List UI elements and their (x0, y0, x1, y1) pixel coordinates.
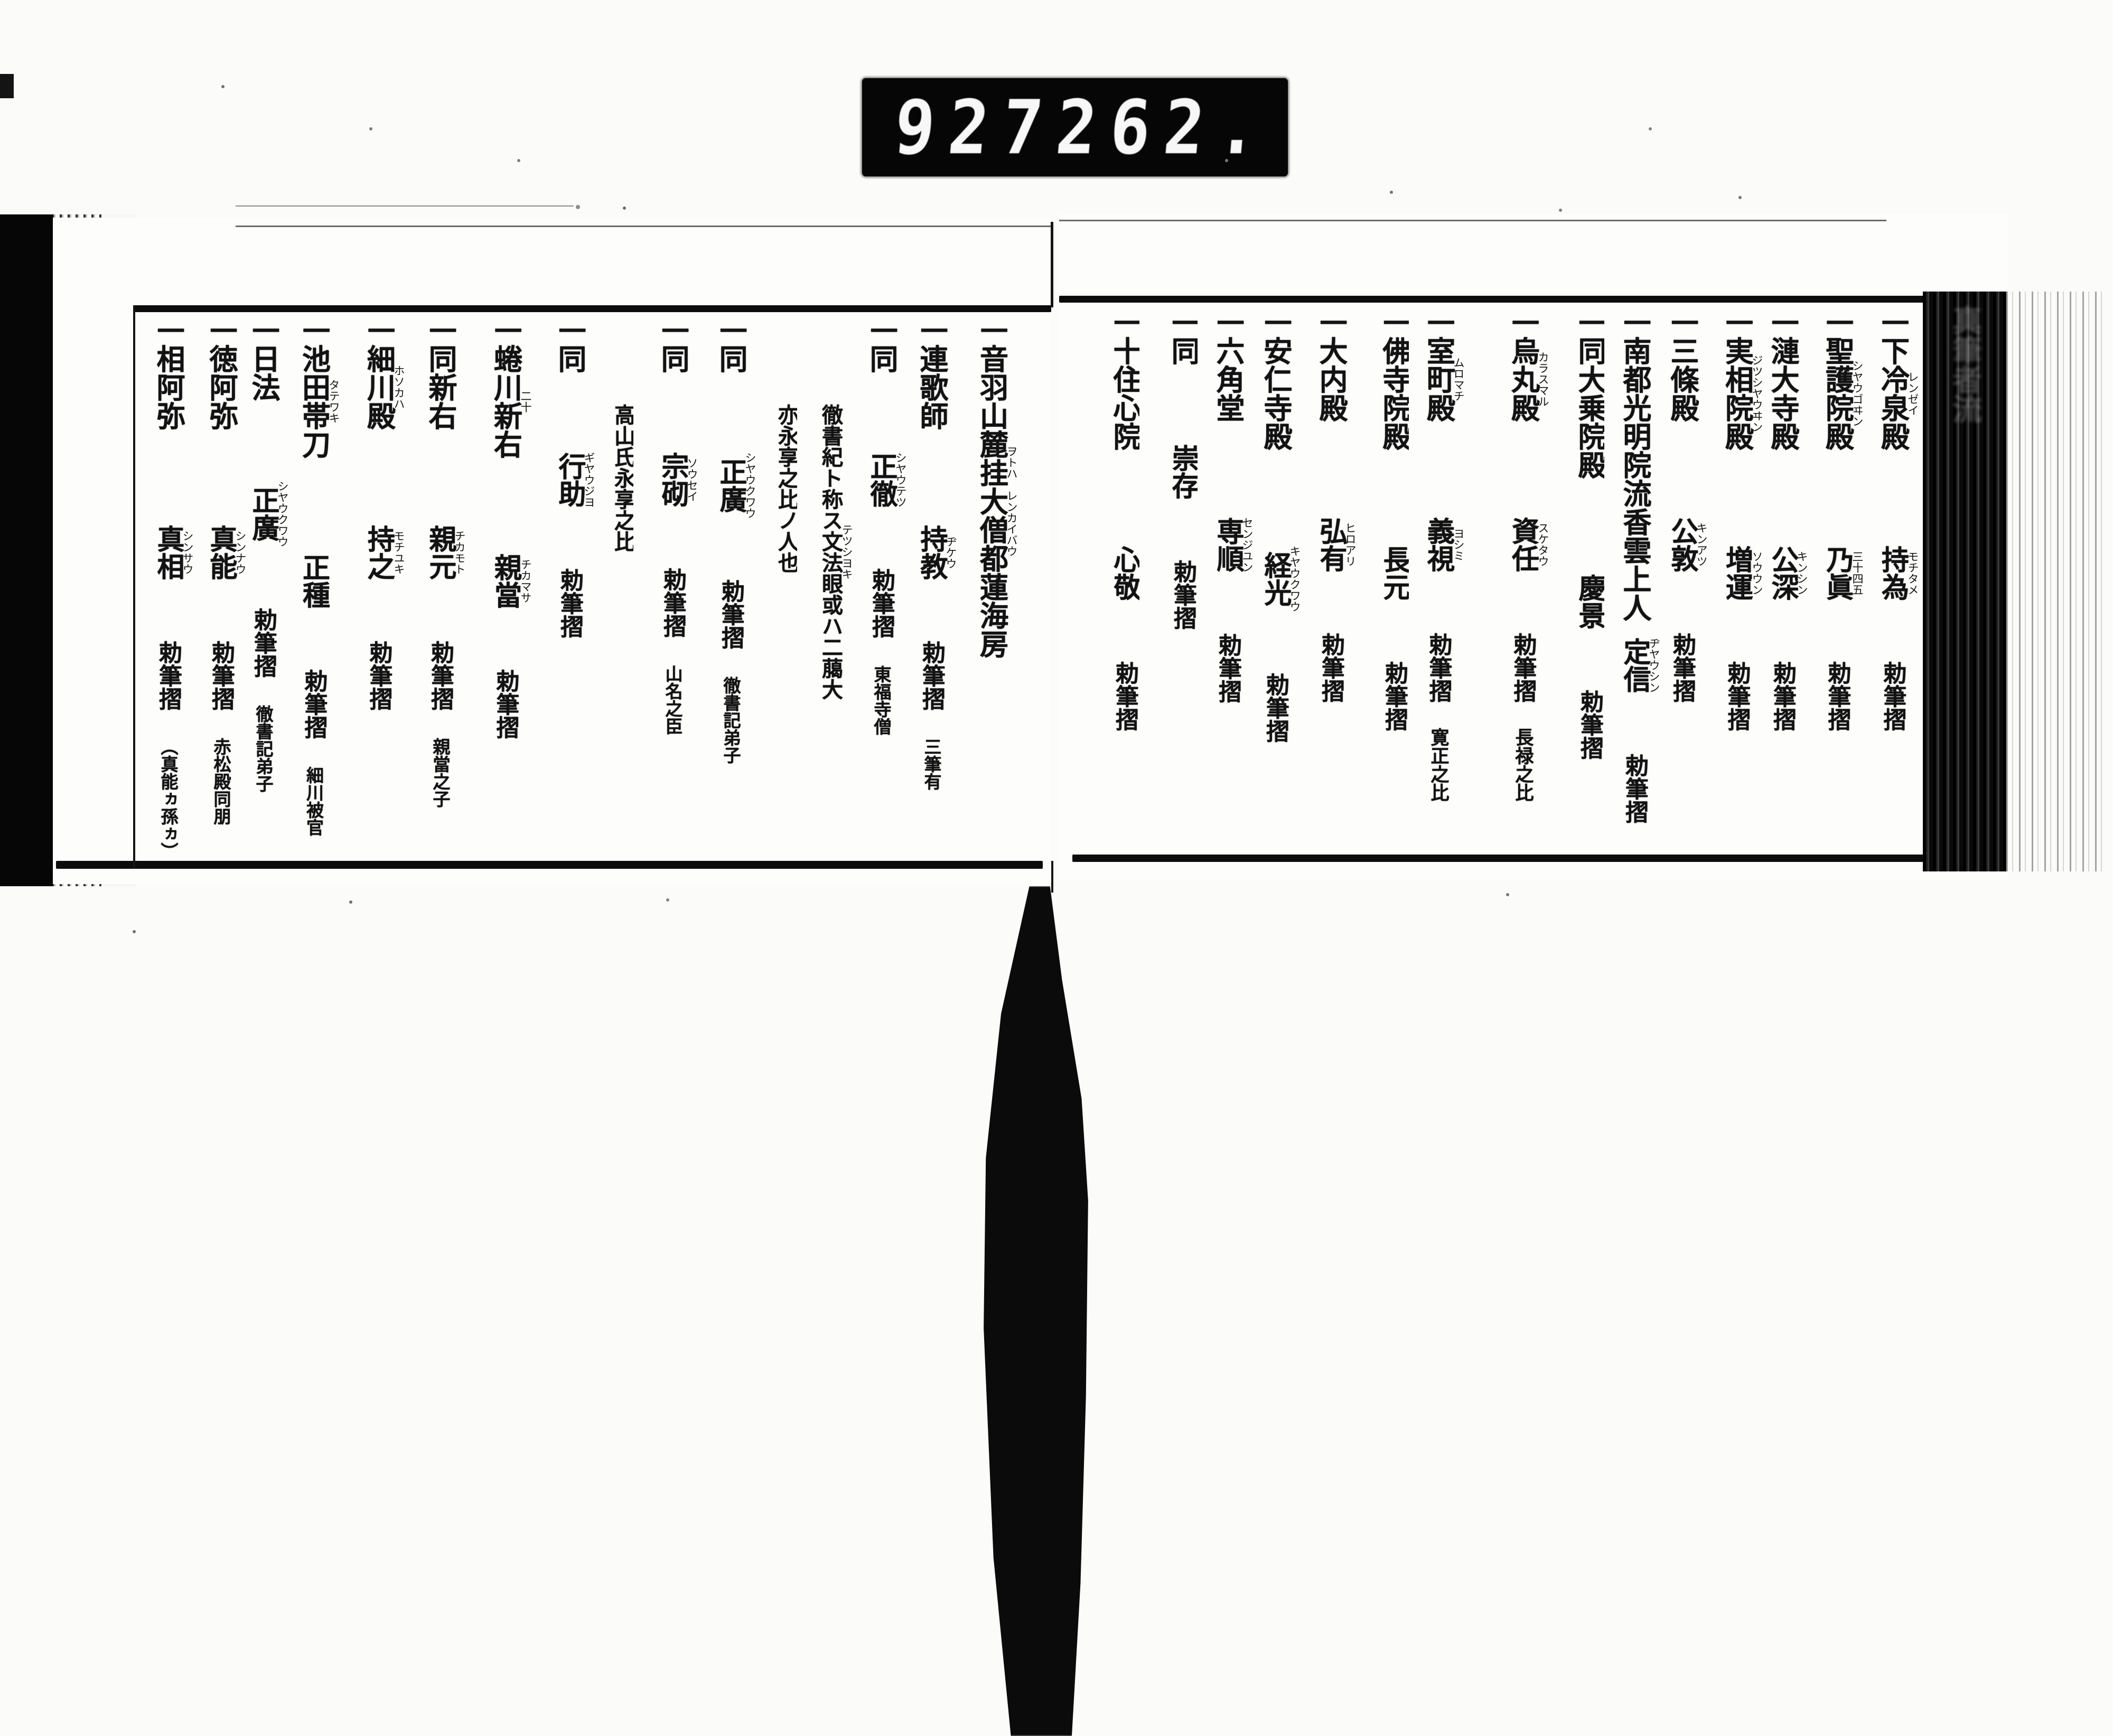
item-marker: 一 (1721, 309, 1753, 336)
item-marker: 一 (1766, 309, 1798, 336)
chokuhitsu-label: 勅筆摺 (1425, 633, 1452, 702)
chokuhitsu-label: 勅筆摺 (1510, 633, 1537, 702)
entry-title: 蜷川新右二十 (489, 344, 522, 458)
text-column: 一連歌師持教ヂケウ勅筆摺三筆有 (908, 317, 957, 860)
entry-note: 細川被官 (304, 766, 324, 836)
item-marker: 一 (1212, 309, 1244, 336)
entry-title: 漣大寺殿 (1766, 336, 1799, 451)
era-note: 寛正之比 (1428, 728, 1449, 802)
chokuhitsu-label: 勅筆摺 (1724, 661, 1751, 731)
text-column: 一池田帯刀タテワキ正種勅筆摺細川被官 (291, 317, 340, 860)
item-marker: 一 (1167, 309, 1198, 336)
entry-title: 大内殿 (1314, 336, 1348, 422)
entry-name: 定信ヂヤウシン (1619, 637, 1650, 693)
chokuhitsu-label: 勅筆摺 (1262, 673, 1289, 743)
entry-name: 正種 (298, 553, 330, 608)
counter-left-digits: 927 (891, 84, 1060, 171)
gutter-shadow: 真筆者流 (1923, 292, 2006, 871)
item-marker: 一 (1507, 309, 1539, 336)
text-column: 一蜷川新右二十親當チカマサ勅筆摺 (483, 317, 531, 860)
item-marker: 一 (1619, 309, 1650, 336)
annotation-text: 亦永享之比ノ人也 (774, 404, 797, 573)
left-page-top-edge (236, 226, 1051, 227)
film-counter: 927 262. (862, 78, 1288, 176)
entry-title: 聖護院殿シヤウゴヰン (1821, 336, 1854, 451)
text-column: 一聖護院殿シヤウゴヰン乃眞三十四五勅筆摺 (1815, 309, 1863, 853)
text-column: 一同正廣シヤウクワウ勅筆摺徹書記弟子 (707, 317, 756, 860)
chokuhitsu-label: 勅筆摺 (492, 669, 519, 739)
text-column: 一大内殿弘有ヒロアリ勅筆摺 (1307, 309, 1356, 853)
entry-name: 資任スケタウ (1507, 517, 1539, 572)
entry-name: 弘有ヒロアリ (1315, 517, 1347, 572)
entry-name: 乃眞三十四五 (1821, 546, 1853, 600)
entry-name: 公敦キンアツ (1666, 517, 1698, 572)
entry-title: 同 (865, 344, 898, 373)
entry-name: 長元 (1378, 546, 1409, 600)
entry-name: 専順センジユン (1212, 517, 1244, 573)
item-marker: 一 (1259, 309, 1291, 336)
entry-title: 同 (714, 344, 747, 373)
entry-name: 真相シンサウ (152, 525, 184, 580)
annotation-column: 高山氏永享之比 (596, 317, 633, 860)
right-frame-top (1059, 296, 1929, 303)
entry-note: 親當之子 (430, 738, 451, 808)
item-marker: 一 (490, 317, 521, 344)
entry-name: 心敬 (1109, 546, 1139, 600)
item-marker: 一 (1574, 309, 1604, 336)
entry-title: 連歌師 (915, 344, 948, 430)
item-marker: 一 (915, 317, 947, 344)
right-page-text: 一同勾當内侍一下冷泉殿レンゼイ持為モチタメ勅筆摺一聖護院殿シヤウゴヰン乃眞三十四… (1059, 309, 1928, 853)
entry-note: 東福寺僧 (871, 665, 892, 735)
entry-note: 山名之臣 (662, 665, 683, 735)
entry-title: 下冷泉殿レンゼイ (1876, 336, 1910, 451)
film-edge-mark (0, 74, 14, 98)
entry-title: 佛寺院殿 (1378, 336, 1409, 451)
chokuhitsu-label: 勅筆摺 (1214, 633, 1241, 703)
text-column: 一同宗砌ソウセイ勅筆摺山名之臣 (649, 317, 698, 860)
chokuhitsu-label: 勅筆摺 (1621, 754, 1648, 823)
text-column: 一安仁寺殿経光キヤウクワウ勅筆摺 (1252, 309, 1301, 853)
fold-shadow (981, 886, 1090, 1736)
entry-name: 行助ギヤウジヨ (554, 452, 585, 508)
entry-title: 同 (553, 344, 586, 373)
entry-title: 細川殿ホソカハ (362, 344, 396, 430)
entry-name: 親元チカモト (424, 525, 456, 580)
text-column: 一相阿弥真相シンサウ勅筆摺（真能ヵ孫ヵ） (145, 317, 193, 860)
item-marker: 一 (205, 317, 237, 344)
entry-title: 日法 (247, 344, 280, 401)
text-column: 一烏丸殿カラスマル資任スケタウ勅筆摺長禄之比 (1500, 309, 1549, 853)
text-column: 一下冷泉殿レンゼイ持為モチタメ勅筆摺 (1870, 309, 1919, 853)
entry-title: 六角堂 (1211, 336, 1245, 422)
annotation-column: 徹書紀ト称ス文法眼或ハ二﨟大テツシヨキ (816, 317, 853, 860)
chokuhitsu-label: 勅筆摺 (301, 669, 328, 739)
entry-title: 池田帯刀タテワキ (297, 344, 331, 458)
entry-title: 安仁寺殿 (1259, 336, 1292, 451)
chokuhitsu-label: 勅筆摺 (1111, 661, 1138, 731)
chokuhitsu-label: 勅筆摺 (1317, 633, 1344, 702)
text-column: 一室町殿ムロマチ義視ヨシミ勅筆摺寛正之比 (1416, 309, 1464, 853)
chokuhitsu-label: 勅筆摺 (1824, 661, 1851, 731)
text-column: 一実相院殿ジツシヤウヰン増運ソウウン勅筆摺 (1714, 309, 1763, 853)
entry-title: 同 (656, 344, 689, 373)
text-column: 一同崇存勅筆摺 (1149, 309, 1198, 853)
item-marker: 一 (363, 317, 395, 344)
entry-title: 相阿弥 (152, 344, 185, 430)
entry-name: 宗砌ソウセイ (657, 452, 688, 507)
entry-note: 三筆有 (921, 738, 942, 790)
entry-title: 室町殿ムロマチ (1422, 336, 1455, 422)
chokuhitsu-label: 勅筆摺 (868, 568, 895, 638)
entry-title: 烏丸殿カラスマル (1507, 336, 1540, 422)
chokuhitsu-label: 勅筆摺 (556, 568, 583, 638)
text-column: 一同行助ギヤウジヨ勅筆摺 (546, 317, 595, 860)
text-column: 一同新右親元チカモト勅筆摺親當之子 (417, 317, 465, 860)
entry-title: 同新右 (424, 344, 457, 430)
entry-name: 親當チカマサ (490, 553, 521, 608)
item-marker: 一 (554, 317, 585, 344)
item-marker: 一 (976, 317, 1007, 344)
chokuhitsu-label: 勅筆摺 (659, 568, 686, 637)
page-divider-line (1051, 222, 1053, 307)
entry-name: 正徹シヤウテツ (865, 452, 897, 508)
text-column: 一同大乗院殿慶景勅筆摺 (1556, 309, 1604, 853)
entry-name: 持之モチユキ (363, 525, 395, 580)
text-column: 一漣大寺殿公深キンシン勅筆摺 (1759, 309, 1808, 853)
entry-title: 同 (1166, 336, 1198, 365)
left-frame-top (135, 305, 1051, 312)
item-marker: 一 (247, 317, 279, 344)
left-edge-band (0, 214, 53, 886)
annotation-column: 亦永享之比ノ人也 (760, 317, 797, 860)
text-column: 一十住心院心敬勅筆摺 (1091, 309, 1139, 853)
text-column: 一細川殿ホソカハ持之モチユキ勅筆摺 (356, 317, 405, 860)
entry-name: 持教ヂケウ (915, 525, 947, 580)
entry-title: 実相院殿ジツシヤウヰン (1721, 336, 1754, 451)
left-page-text: 一音羽山麓挂大僧都蓮海房ヲトハ レンカイバウ一連歌師持教ヂケウ勅筆摺三筆有一同正… (53, 317, 1050, 860)
item-marker: 一 (298, 317, 330, 344)
entry-note: 赤松殿同朋 (211, 738, 231, 825)
right-edge-streaks (2006, 292, 2108, 871)
item-marker: 一 (1109, 309, 1139, 336)
entry-note: 徹書記弟子 (253, 705, 274, 792)
entry-title: 音羽山麓挂大僧都蓮海房ヲトハ レンカイバウ (975, 344, 1008, 658)
item-marker: 一 (1821, 309, 1853, 336)
entry-title: 三條殿 (1666, 336, 1699, 422)
entry-note: （真能ヵ孫ヵ） (158, 738, 179, 860)
counter-right-digits: 262. (1052, 84, 1275, 171)
entry-name: 持為モチタメ (1877, 546, 1909, 600)
text-column: 一南都光明院流香雲上人定信ヂヤウシン勅筆摺 (1611, 309, 1660, 853)
right-frame-bottom (1072, 855, 1928, 862)
chokuhitsu-label: 勅筆摺 (717, 579, 744, 649)
item-marker: 一 (1423, 309, 1454, 336)
annotation-text: 徹書紀ト称ス文法眼或ハ二﨟大テツシヨキ (818, 404, 843, 700)
right-page-top-edge (1059, 220, 1886, 221)
entry-name: 正廣シヤウクワウ (715, 452, 746, 519)
text-column: 一佛寺院殿長元勅筆摺 (1360, 309, 1409, 853)
text-column: 一三條殿公敦キンアツ勅筆摺 (1659, 309, 1707, 853)
chokuhitsu-label: 勅筆摺 (366, 641, 392, 710)
item-marker: 一 (424, 317, 456, 344)
item-marker: 一 (715, 317, 746, 344)
chokuhitsu-label: 勅筆摺 (208, 641, 235, 710)
entry-name: 崇存 (1167, 444, 1198, 499)
chokuhitsu-label: 勅筆摺 (155, 641, 182, 710)
chokuhitsu-label: 勅筆摺 (1381, 661, 1408, 731)
item-marker: 一 (865, 317, 897, 344)
entry-name: 経光キヤウクワウ (1259, 546, 1291, 612)
chokuhitsu-label: 勅筆摺 (250, 608, 277, 678)
chokuhitsu-label: 勅筆摺 (918, 641, 945, 710)
microfilm-scan: 927 262. 〇真筆者流全十 一音羽山麓挂大僧都蓮海房ヲトハ レンカイバウ一… (0, 0, 2113, 1736)
chokuhitsu-label: 勅筆摺 (1669, 633, 1696, 702)
chokuhitsu-label: 勅筆摺 (1170, 560, 1196, 630)
gutter-ghost-text: 真筆者流 (1943, 305, 1986, 424)
item-marker: 一 (1877, 309, 1909, 336)
entry-title: 同大乗院殿 (1573, 336, 1604, 479)
text-column: 一日法正廣シヤウクワウ勅筆摺徹書記弟子 (240, 317, 288, 860)
chokuhitsu-label: 勅筆摺 (427, 641, 454, 710)
item-marker: 一 (1315, 309, 1347, 336)
chokuhitsu-label: 勅筆摺 (1880, 661, 1906, 731)
entry-name: 慶景 (1574, 574, 1604, 629)
fold-line (1051, 861, 1053, 893)
item-marker: 一 (1378, 309, 1409, 336)
text-column: 一音羽山麓挂大僧都蓮海房ヲトハ レンカイバウ (969, 317, 1017, 860)
era-note: 長禄之比 (1512, 728, 1534, 802)
text-column: 一徳阿弥真能シンナウ勅筆摺赤松殿同朋 (198, 317, 246, 860)
entry-name: 増運ソウウン (1721, 546, 1753, 600)
entry-title: 徳阿弥 (204, 344, 238, 430)
text-column: 一六角堂専順センジユン勅筆摺 (1204, 309, 1253, 853)
item-marker: 一 (152, 317, 184, 344)
chokuhitsu-label: 勅筆摺 (1769, 661, 1796, 731)
entry-name: 真能シンナウ (205, 525, 237, 580)
item-marker: 一 (657, 317, 688, 344)
chokuhitsu-label: 勅筆摺 (1576, 690, 1603, 759)
scan-noise-speckles (0, 0, 2, 2)
entry-note: 徹書記弟子 (721, 677, 741, 764)
entry-name: 義視ヨシミ (1423, 517, 1454, 572)
item-marker: 一 (1666, 309, 1698, 336)
text-column: 一同正徹シヤウテツ勅筆摺東福寺僧 (858, 317, 906, 860)
entry-title: 十住心院 (1108, 336, 1139, 451)
entry-title: 南都光明院流香雲上人 (1618, 336, 1651, 622)
left-frame-bottom (56, 861, 1043, 869)
entry-name: 公深キンシン (1766, 546, 1798, 600)
entry-name: 正廣シヤウクワウ (247, 481, 279, 547)
scratch-line (236, 205, 574, 207)
annotation-text: 高山氏永享之比 (611, 404, 633, 552)
